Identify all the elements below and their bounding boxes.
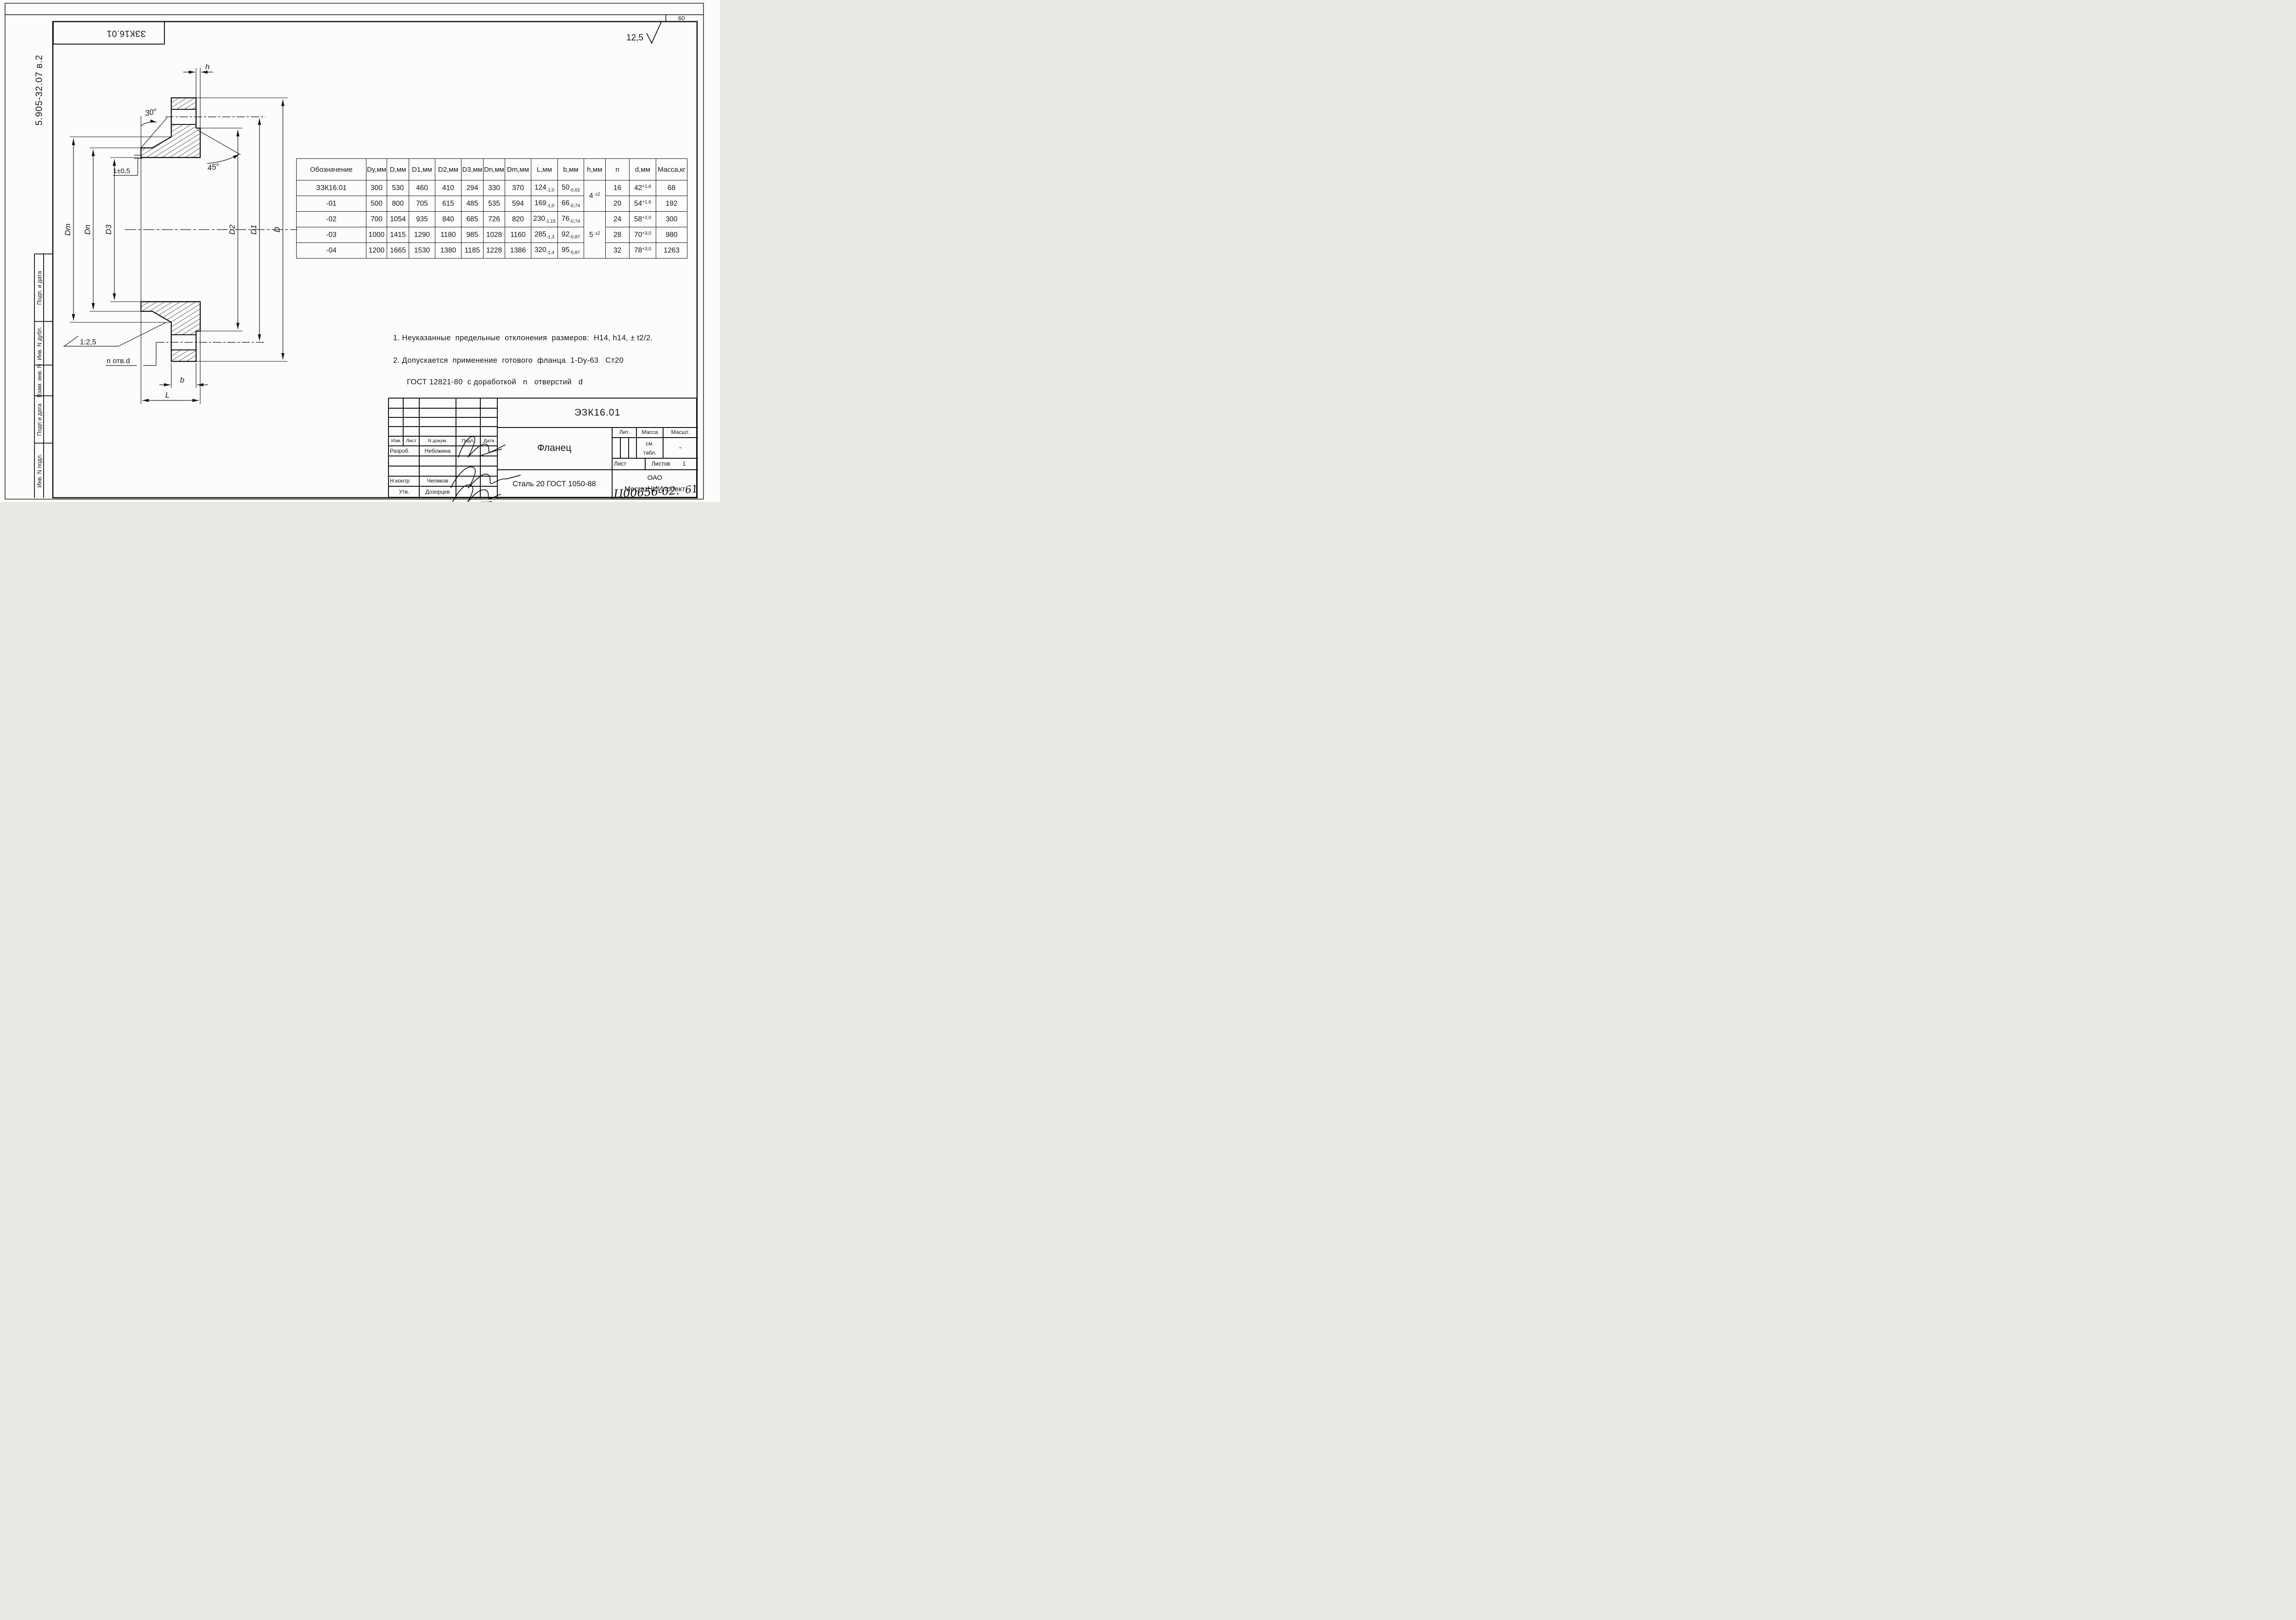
dim-label-D1: D1 — [249, 225, 258, 235]
tb-sheets-value: 1 — [677, 458, 691, 469]
tb-company-1: ОАО — [613, 471, 697, 484]
dim-label-45: 45° — [207, 162, 220, 173]
table-row: -03100014151290118098510281160285-1,392-… — [297, 227, 687, 243]
dim-label-Dn: Dn — [83, 225, 92, 235]
table-cell: 1200 — [366, 243, 387, 259]
dim-label-step: 1±0,5 — [113, 167, 130, 175]
table-cell: 1000 — [366, 227, 387, 243]
tb-mass-value-1: см. — [637, 439, 663, 448]
table-cell: 726 — [484, 212, 505, 227]
table-cell: 370 — [505, 180, 531, 196]
table-header-cell: Масса,кг — [656, 159, 687, 180]
table-cell: 1185 — [461, 243, 484, 259]
table-cell: 66-0,74 — [558, 196, 584, 212]
table-header-cell: D2,мм — [435, 159, 461, 180]
table-cell: 594 — [505, 196, 531, 212]
dim-label-slope: 1:2,5 — [80, 338, 96, 346]
table-row: -027001054935840685726820230-1,1576-0,74… — [297, 212, 687, 227]
note-3: ГОСТ 12821-80 с доработкой n отверстий d — [407, 378, 583, 387]
dim-label-b: b — [180, 376, 184, 384]
table-cell: 285-1,3 — [531, 227, 558, 243]
dim-label-30: 30° — [144, 107, 158, 118]
margin-cell-podp-data-1: Подп. и дата — [36, 271, 43, 305]
table-header-cell: h,мм — [584, 159, 606, 180]
table-cell: 95-0,87 — [558, 243, 584, 259]
table-cell: 485 — [461, 196, 484, 212]
dim-label-L: L — [165, 391, 169, 399]
tb-col-data: Дата — [481, 436, 497, 445]
table-cell: 50-0,62 — [558, 180, 584, 196]
table-cell: 78+3,0 — [630, 243, 656, 259]
tb-mass-value-2: табл. — [637, 448, 663, 457]
tb-mass-label: Масса — [637, 427, 663, 437]
table-header-cell: D,мм — [387, 159, 409, 180]
table-cell: 840 — [435, 212, 461, 227]
table-cell: 54+1,6 — [630, 196, 656, 212]
dim-label-holes: n отв.d — [107, 357, 130, 365]
tb-doc-code: ЭЗК16.01 — [498, 399, 697, 426]
table-cell: 1054 — [387, 212, 409, 227]
table-cell: 330 — [484, 180, 505, 196]
table-cell: 300 — [366, 180, 387, 196]
tb-material: Сталь 20 ГОСТ 1050-88 — [498, 470, 611, 498]
note-2: 2. Допускается применение готового фланц… — [393, 356, 624, 365]
margin-cell-podp-data-2: Подп и дата — [36, 404, 43, 436]
dim-table-body: ЗЗК16.01300530460410294330370124-1,050-0… — [297, 180, 687, 259]
table-cell: 32 — [606, 243, 630, 259]
tb-lit-label: Лит. — [613, 427, 636, 437]
dim-label-Dm: Dm — [63, 224, 72, 236]
table-header-cell: b,мм — [558, 159, 584, 180]
table-cell: 294 — [461, 180, 484, 196]
title-block: Изм. Лист N докум. Подп. Дата Разроб. Не… — [388, 398, 697, 498]
top-stamp-code: ЗЗК16.01 — [107, 28, 146, 38]
table-cell: 980 — [656, 227, 687, 243]
table-cell: -03 — [297, 227, 366, 243]
table-cell: 42+1,6 — [630, 180, 656, 196]
table-cell: 70+3,0 — [630, 227, 656, 243]
tb-part-name: Фланец — [498, 428, 611, 468]
handwritten-page: 61 — [685, 484, 698, 496]
table-header-cell: Dy,мм — [366, 159, 387, 180]
table-cell: 28 — [606, 227, 630, 243]
table-cell: 1386 — [505, 243, 531, 259]
tb-sheets-label: Листов — [647, 458, 675, 469]
tb-col-ndok: N докум. — [420, 436, 456, 445]
table-cell: 615 — [435, 196, 461, 212]
tb-scale-value: - — [664, 437, 697, 458]
top-stamp-box: ЗЗК16.01 — [53, 21, 165, 45]
table-cell: 24 — [606, 212, 630, 227]
table-cell: 985 — [461, 227, 484, 243]
table-cell: 535 — [484, 196, 505, 212]
note-1: 1. Неуказанные предельные отклонения раз… — [393, 334, 653, 343]
table-cell: -02 — [297, 212, 366, 227]
table-cell: -04 — [297, 243, 366, 259]
tb-scale-label: Масшт. — [664, 427, 697, 437]
table-row: -041200166515301380118512281386320-1,495… — [297, 243, 687, 259]
tb-role-razrab: Разроб. — [390, 446, 418, 456]
tb-name-utv: Дозорцев — [420, 486, 456, 498]
table-cell: 1028 — [484, 227, 505, 243]
table-cell: 1380 — [435, 243, 461, 259]
table-cell-h: 4 ±2 — [584, 180, 606, 212]
drawing-sheet: h 30° 45° 1±0,5 1:2,5 n отв.d b L Dm Dn … — [0, 0, 720, 502]
margin-cell-inv-dubl: Инв. N дубл. — [36, 326, 43, 360]
margin-cell-inv-podl: Инв. N подл. — [36, 454, 43, 487]
table-cell: 76-0,74 — [558, 212, 584, 227]
roughness-value: 12,5 — [626, 33, 643, 43]
dim-label-D3: D3 — [104, 225, 113, 235]
table-header-row: ОбозначениеDy,ммD,ммD1,ммD2,ммD3,ммDn,мм… — [297, 159, 687, 180]
table-cell: 1290 — [409, 227, 435, 243]
tb-col-list: Лист — [404, 436, 419, 445]
table-cell: 58+2,0 — [630, 212, 656, 227]
table-cell: 1160 — [505, 227, 531, 243]
table-cell: 935 — [409, 212, 435, 227]
section-bottom-half — [141, 302, 200, 361]
sheet-number: 60 — [666, 15, 697, 22]
table-cell: 500 — [366, 196, 387, 212]
margin-cell-vzam-inv: Взам. инв. N — [36, 364, 43, 397]
table-header-cell: Обозначение — [297, 159, 366, 180]
table-cell: 16 — [606, 180, 630, 196]
table-cell: 20 — [606, 196, 630, 212]
table-cell: 1665 — [387, 243, 409, 259]
table-cell: 820 — [505, 212, 531, 227]
table-cell: ЗЗК16.01 — [297, 180, 366, 196]
table-cell: 192 — [656, 196, 687, 212]
table-header-cell: d,мм — [630, 159, 656, 180]
table-cell: 410 — [435, 180, 461, 196]
table-row: -01500800705615485535594169-1,066-0,7420… — [297, 196, 687, 212]
table-row: ЗЗК16.01300530460410294330370124-1,050-0… — [297, 180, 687, 196]
table-cell: 300 — [656, 212, 687, 227]
table-cell: 700 — [366, 212, 387, 227]
tb-role-nkontr: Н.контр — [390, 476, 418, 486]
table-header-cell: n — [606, 159, 630, 180]
table-cell: 1415 — [387, 227, 409, 243]
table-cell: 169-1,0 — [531, 196, 558, 212]
table-header-cell: Dm,мм — [505, 159, 531, 180]
tb-sheet-label: Лист — [614, 458, 645, 469]
table-header-cell: D3,мм — [461, 159, 484, 180]
tb-col-podp: Подп. — [456, 436, 480, 445]
tb-name-nkontr: Чепиков — [420, 476, 456, 486]
table-cell: 460 — [409, 180, 435, 196]
dim-label-h: h — [205, 62, 209, 71]
table-cell: 705 — [409, 196, 435, 212]
table-header-cell: L,мм — [531, 159, 558, 180]
table-cell: 800 — [387, 196, 409, 212]
table-cell: 92-0,87 — [558, 227, 584, 243]
doc-code-vertical: 5.905-32.07 в.2 — [34, 55, 45, 126]
table-cell: 1530 — [409, 243, 435, 259]
table-cell: 230-1,15 — [531, 212, 558, 227]
table-header-cell: Dn,мм — [484, 159, 505, 180]
table-cell: -01 — [297, 196, 366, 212]
tb-role-utv: Утв. — [390, 486, 418, 498]
table-cell: 68 — [656, 180, 687, 196]
dimension-table-wrap: ОбозначениеDy,ммD,ммD1,ммD2,ммD3,ммDn,мм… — [296, 158, 687, 259]
table-cell: 124-1,0 — [531, 180, 558, 196]
table-cell: 685 — [461, 212, 484, 227]
table-cell: 320-1,4 — [531, 243, 558, 259]
table-header-cell: D1,мм — [409, 159, 435, 180]
table-cell: 1180 — [435, 227, 461, 243]
tb-col-izm: Изм. — [390, 436, 403, 445]
tb-name-razrab: Небожина — [420, 446, 456, 456]
dim-label-D2: D2 — [228, 225, 236, 235]
table-cell: 530 — [387, 180, 409, 196]
section-top-half — [141, 98, 200, 157]
dim-label-D: D — [273, 227, 281, 232]
table-cell: 1263 — [656, 243, 687, 259]
table-cell-h: 5 ±2 — [584, 212, 606, 259]
table-cell: 1228 — [484, 243, 505, 259]
dim-table: ОбозначениеDy,ммD,ммD1,ммD2,ммD3,ммDn,мм… — [296, 158, 687, 259]
